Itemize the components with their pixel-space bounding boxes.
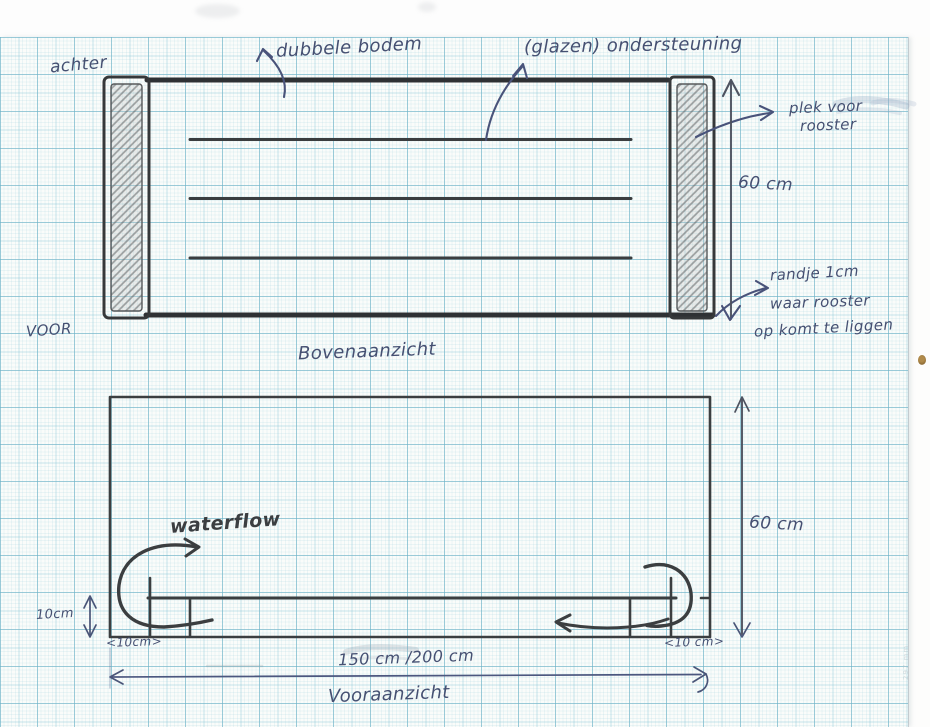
right-grate-column-hatch: [677, 84, 707, 311]
label-10cm-height: 10cm: [36, 607, 75, 623]
label-waar-rooster: waar rooster: [770, 293, 871, 312]
label-10cm-right-width: <10 cm>: [664, 635, 725, 650]
label-rooster: rooster: [800, 117, 857, 135]
label-glazen-ondersteuning: (glazen) ondersteuning: [524, 35, 743, 58]
left-grate-column-hatch: [111, 84, 142, 311]
length-dim-line: [111, 675, 701, 678]
label-60cm-front-view: 60 cm: [749, 515, 805, 536]
label-voor: VOOR: [26, 321, 73, 340]
label-10cm-left-width: <10cm>: [106, 635, 162, 650]
erased-pencil-marks: [207, 100, 914, 666]
double-bottom-arrowhead-icon: [257, 49, 272, 61]
rim-note-arrowhead-icon: [755, 281, 768, 295]
label-60cm-top-view: 60 cm: [738, 175, 794, 196]
paper-speck: [918, 355, 926, 365]
top-view-drawing: [104, 77, 714, 318]
right-flow-hook: [645, 565, 691, 627]
paper-margin-note: 297 mm: [903, 645, 910, 680]
left-flow-hook: [119, 545, 212, 627]
graph-paper-sketch: achter dubbele bodem (glazen) ondersteun…: [0, 0, 930, 727]
